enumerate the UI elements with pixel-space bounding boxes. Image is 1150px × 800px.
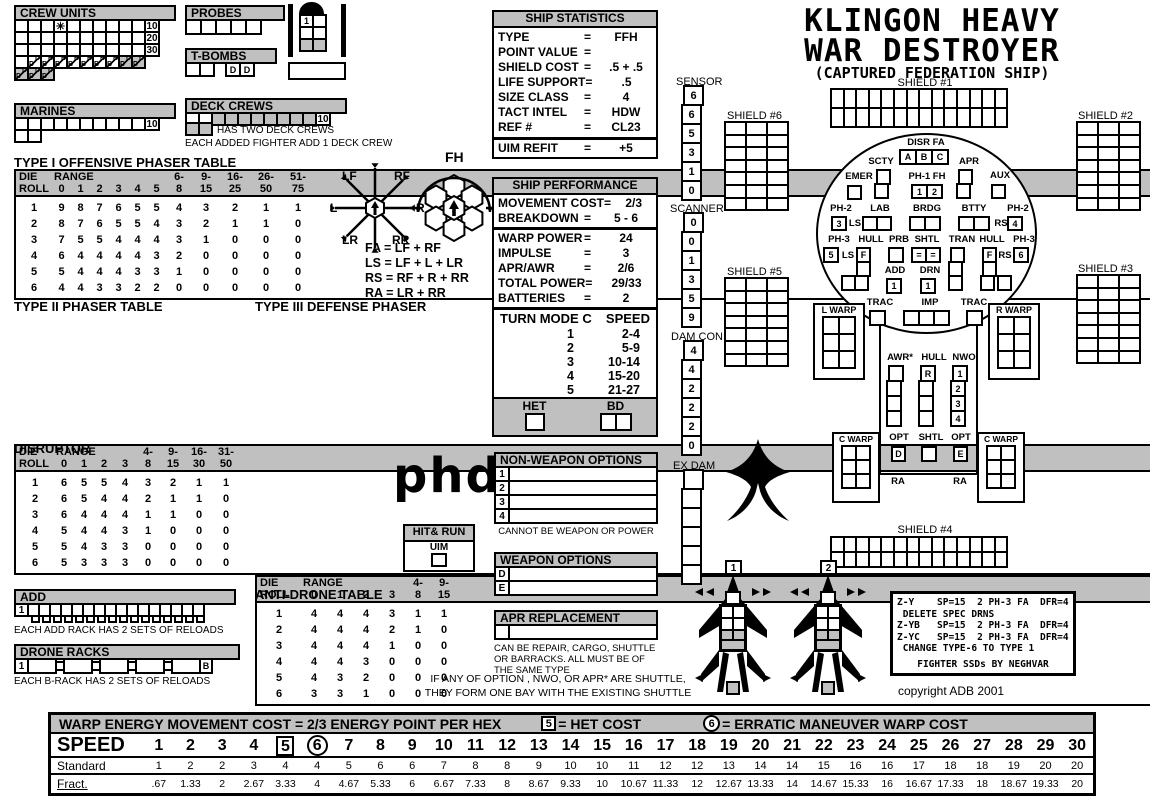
equals: = bbox=[584, 120, 600, 135]
value-cell: 4 bbox=[353, 606, 379, 622]
stat-row: SIZE CLASS=4 bbox=[494, 90, 656, 105]
stat-row: MOVEMENT COST=2/3 bbox=[494, 196, 656, 211]
value-cell: 6 bbox=[54, 507, 74, 523]
stat-label: TOTAL POWER bbox=[498, 276, 585, 291]
value-cell: 4 bbox=[90, 264, 109, 280]
turn-mode-speed: 15-20 bbox=[574, 369, 656, 383]
value-cell: 0 bbox=[160, 555, 186, 571]
value-cell: 3 bbox=[327, 686, 353, 702]
value-cell: 0 bbox=[405, 654, 431, 670]
hdr-text: 5 bbox=[153, 183, 159, 195]
speed-value: 10 bbox=[428, 737, 460, 755]
marines-row bbox=[14, 129, 176, 143]
turn-mode-number: 2 bbox=[494, 341, 574, 355]
drone-racks-panel: DRONE RACKS 1B EACH B-RACK HAS 2 SETS OF… bbox=[14, 644, 240, 687]
grid-row bbox=[1076, 350, 1141, 365]
stat-label: APR/AWR bbox=[498, 261, 584, 276]
fract-value: 6 bbox=[396, 778, 428, 790]
mark: B bbox=[94, 61, 99, 69]
fract-value: 13.33 bbox=[745, 778, 777, 790]
t-bombs-track: DD bbox=[185, 64, 285, 77]
value-cell: 4 bbox=[327, 606, 353, 622]
speed-value: 22 bbox=[808, 737, 840, 755]
value-cell: 7 bbox=[90, 200, 109, 216]
track-cell: 1 bbox=[681, 161, 702, 182]
mark: D bbox=[42, 73, 47, 81]
value-cell: 1 bbox=[160, 507, 186, 523]
speed-value: 17 bbox=[650, 737, 682, 755]
die-cell: 2 bbox=[16, 491, 54, 507]
value-cell: 0 bbox=[431, 654, 457, 670]
stat-value: 3 bbox=[600, 246, 652, 261]
erratic-circle: 6 bbox=[703, 715, 720, 732]
track-cell bbox=[681, 526, 702, 547]
standard-value: 16 bbox=[840, 760, 872, 772]
uim-box bbox=[431, 553, 447, 567]
value-cell: 4 bbox=[147, 216, 166, 232]
stat-label: LIFE SUPPORT bbox=[498, 75, 585, 90]
value-cell: 4 bbox=[114, 491, 136, 507]
range-col: 5 bbox=[147, 171, 166, 195]
fract-value: 6.67 bbox=[428, 778, 460, 790]
value-cell: 6 bbox=[109, 200, 128, 216]
die-cell: 2 bbox=[257, 622, 301, 638]
turn-mode-row: 521-27 bbox=[494, 383, 656, 397]
value-cell: 4 bbox=[353, 638, 379, 654]
stat-value: 29/33 bbox=[601, 276, 652, 291]
shuttle-cells: 1 bbox=[299, 14, 327, 52]
standard-value: 8 bbox=[491, 760, 523, 772]
r-warp-grid bbox=[997, 316, 1031, 369]
ship-statistics-rows: TYPE=FFHPOINT VALUE=SHIELD COST=.5 + .5L… bbox=[494, 28, 656, 137]
svg-text:2: 2 bbox=[826, 563, 832, 574]
range-col: 4-8 bbox=[136, 446, 160, 470]
fract-row: Fract..671.3322.673.3344.675.3366.677.33… bbox=[51, 775, 1093, 793]
shuttle-bay-icon: 1 bbox=[288, 2, 348, 82]
speed-value: 18 bbox=[681, 737, 713, 755]
hdr-text: 1 bbox=[81, 458, 87, 470]
ssd-sheet: CREW UNITS ✳102030DDBBBBBBBBBBBBDDDDDDDD… bbox=[0, 0, 1150, 800]
probes-track bbox=[185, 21, 285, 35]
hit-run-panel: HIT& RUN UIM bbox=[403, 524, 475, 572]
range-col: 2 bbox=[94, 446, 114, 470]
fighter-info-line: Z-YC SP=15 2 PH-3 FA DFR=4 bbox=[897, 632, 1069, 644]
erratic-label: = ERRATIC MANEUVER WARP COST bbox=[722, 716, 968, 732]
hdr-text: 50 bbox=[220, 458, 232, 470]
value-cell: 6 bbox=[90, 216, 109, 232]
value-cell: 0 bbox=[186, 555, 212, 571]
value-cell: 4 bbox=[74, 507, 94, 523]
speed-value: 7 bbox=[333, 737, 365, 755]
svg-text:LR: LR bbox=[342, 233, 358, 247]
value-cell: 5 bbox=[54, 539, 74, 555]
fract-value: 12.67 bbox=[713, 778, 745, 790]
het-speed-box: 5 bbox=[276, 736, 294, 756]
shuttle-note-line: THEY FORM ONE BAY WITH THE EXISTING SHUT… bbox=[408, 686, 708, 700]
die-cell: 3 bbox=[16, 232, 52, 248]
speed-value: 14 bbox=[555, 737, 587, 755]
standard-value: 14 bbox=[745, 760, 777, 772]
ship-title-line1: KLINGON HEAVY bbox=[762, 6, 1102, 36]
speed-label: SPEED bbox=[51, 734, 143, 757]
speed-value: 27 bbox=[966, 737, 998, 755]
value-cell: 4 bbox=[71, 280, 90, 296]
het-box bbox=[525, 413, 545, 431]
value-cell: 6 bbox=[54, 491, 74, 507]
grid-row bbox=[986, 473, 1016, 489]
standard-value: 1 bbox=[143, 760, 175, 772]
value-cell: 5 bbox=[147, 200, 166, 216]
value-cell: 4 bbox=[90, 248, 109, 264]
value-cell: 5 bbox=[128, 216, 147, 232]
standard-value: 13 bbox=[713, 760, 745, 772]
die-cell: 4 bbox=[16, 523, 54, 539]
hdr-text: 9- bbox=[168, 446, 178, 458]
speed-grid: SPEED12345678910111213141516171819202122… bbox=[51, 734, 1093, 793]
fighter-info-box: Z-Y SP=15 2 PH-3 FA DFR=4 DELETE SPEC DR… bbox=[890, 591, 1076, 676]
crew-count: 30 bbox=[144, 43, 160, 57]
hdr-text: 0 bbox=[61, 458, 67, 470]
turn-mode-title: TURN MODE C bbox=[500, 311, 592, 326]
track-cell: 0 bbox=[681, 231, 702, 252]
standard-row: Standard12234456678891010111212131414151… bbox=[51, 758, 1093, 775]
stat-value: 5 - 6 bbox=[600, 211, 652, 226]
fract-value: 18.67 bbox=[998, 778, 1030, 790]
grid-row bbox=[822, 350, 856, 369]
value-cell: 5 bbox=[90, 232, 109, 248]
value-cell: 7 bbox=[52, 232, 71, 248]
track-cell: 5 bbox=[681, 288, 702, 309]
speed-value: 3 bbox=[206, 737, 238, 755]
die-cell: 4 bbox=[16, 248, 52, 264]
value-cell: 3 bbox=[114, 555, 136, 571]
standard-value: 3 bbox=[238, 760, 270, 772]
equals: = bbox=[584, 90, 600, 105]
hdr-text: 4- bbox=[143, 446, 153, 458]
range-col: 16-25 bbox=[220, 171, 250, 195]
shield-cell bbox=[1118, 350, 1141, 365]
stat-label: WARP POWER bbox=[498, 231, 584, 246]
hdr-text: 3 bbox=[115, 183, 121, 195]
turn-mode-number: 1 bbox=[494, 327, 574, 341]
stat-value: 2/3 bbox=[615, 196, 652, 211]
het-label: HET bbox=[494, 399, 575, 413]
anti-drone-title: ANTI-DRONE TABLE bbox=[255, 587, 383, 602]
stat-label: SHIELD COST bbox=[498, 60, 584, 75]
stat-row: BREAKDOWN=5 - 6 bbox=[494, 211, 656, 226]
non-weapon-options-rows: 1234 bbox=[494, 466, 658, 524]
track-cell: 0 bbox=[681, 180, 702, 201]
fract-value: 4.67 bbox=[333, 778, 365, 790]
shield-cell bbox=[1118, 197, 1141, 212]
shield-cell bbox=[1097, 350, 1120, 365]
hdr-text: 8 bbox=[415, 589, 421, 601]
svg-text:RF: RF bbox=[394, 169, 410, 183]
stat-value: HDW bbox=[600, 105, 652, 120]
deck-crews-note2: EACH ADDED FIGHTER ADD 1 DECK CREW bbox=[185, 138, 347, 149]
range-col: 16-30 bbox=[186, 446, 212, 470]
equals: = bbox=[584, 105, 600, 120]
value-cell: 1 bbox=[192, 232, 220, 248]
speed-value: 13 bbox=[523, 737, 555, 755]
value-cell: 0 bbox=[192, 248, 220, 264]
value-cell: 3 bbox=[166, 232, 192, 248]
fract-value: 14.67 bbox=[808, 778, 840, 790]
standard-value: 9 bbox=[523, 760, 555, 772]
hdr-text: 30 bbox=[193, 458, 205, 470]
track-cell bbox=[681, 488, 702, 509]
value-cell: 4 bbox=[74, 539, 94, 555]
ship-performance-panel: SHIP PERFORMANCE MOVEMENT COST=2/3BREAKD… bbox=[492, 177, 658, 437]
hdr-text: 31- bbox=[218, 446, 234, 458]
stat-label: REF # bbox=[498, 120, 584, 135]
c-warp-right-box: C WARP bbox=[977, 432, 1025, 503]
value-cell: 0 bbox=[166, 280, 192, 296]
grid-row bbox=[1076, 197, 1141, 212]
stat-row: POINT VALUE= bbox=[494, 45, 656, 60]
value-cell: 2 bbox=[379, 622, 405, 638]
value-cell: 6 bbox=[52, 248, 71, 264]
standard-value: 11 bbox=[618, 760, 650, 772]
marines-grid: 10 bbox=[14, 117, 176, 143]
range-col: 9-15 bbox=[160, 446, 186, 470]
value-cell: 2 bbox=[220, 200, 250, 216]
hdr-text: 26- bbox=[258, 171, 274, 183]
stat-row: WARP POWER=24 bbox=[494, 231, 656, 246]
range-col: 9-15 bbox=[192, 171, 220, 195]
value-cell: 1 bbox=[136, 507, 160, 523]
value-cell: 0 bbox=[220, 232, 250, 248]
range-col: 31-50 bbox=[212, 446, 240, 470]
value-cell: 3 bbox=[147, 248, 166, 264]
speed-value: 16 bbox=[618, 737, 650, 755]
drone-rack-b: B bbox=[199, 658, 213, 674]
r-warp-box: R WARP bbox=[988, 303, 1040, 380]
value-cell: 5 bbox=[54, 555, 74, 571]
grid-row bbox=[997, 350, 1031, 369]
value-cell: 1 bbox=[379, 638, 405, 654]
die-cell: 1 bbox=[16, 475, 54, 491]
mark: D bbox=[16, 73, 21, 81]
value-cell: 0 bbox=[282, 232, 314, 248]
speed-value: 30 bbox=[1061, 737, 1093, 755]
die-cell: 4 bbox=[257, 654, 301, 670]
value-cell: 1 bbox=[186, 491, 212, 507]
value-cell: 2 bbox=[128, 280, 147, 296]
weapon-options-panel: WEAPON OPTIONS DE bbox=[494, 552, 658, 596]
shield-cell bbox=[855, 473, 871, 489]
speed-value: 9 bbox=[396, 737, 428, 755]
option-slot bbox=[508, 508, 658, 524]
deck-crews-panel: DECK CREWS 10 HAS TWO DECK CREWS EACH AD… bbox=[185, 98, 347, 149]
fract-value: 20 bbox=[1061, 778, 1093, 790]
equals: = bbox=[585, 276, 601, 291]
crew-cell: DD bbox=[131, 55, 146, 69]
value-cell: 3 bbox=[166, 216, 192, 232]
shield5-grid bbox=[724, 277, 789, 367]
svg-text:LF: LF bbox=[342, 169, 357, 183]
value-cell: 4 bbox=[114, 475, 136, 491]
turn-mode-speed-label: SPEED bbox=[606, 311, 650, 326]
copyright: copyright ADB 2001 bbox=[898, 684, 1004, 698]
fract-value: 8 bbox=[491, 778, 523, 790]
stat-row: REF #=CL23 bbox=[494, 120, 656, 135]
c-warp-label: C WARP bbox=[834, 434, 878, 444]
turn-mode-speed: 10-14 bbox=[574, 355, 656, 369]
range-col: 51-75 bbox=[282, 171, 314, 195]
value-cell: 0 bbox=[379, 654, 405, 670]
speed-value: 4 bbox=[238, 737, 270, 755]
bd-label: BD bbox=[575, 399, 656, 413]
phaser2-title: TYPE II PHASER TABLE bbox=[14, 299, 163, 314]
track-cell: 4 bbox=[681, 359, 702, 380]
hdr-text: 15 bbox=[167, 458, 179, 470]
value-cell: 0 bbox=[220, 264, 250, 280]
standard-value: 8 bbox=[460, 760, 492, 772]
arc-formula-line: RS = RF + R + RR bbox=[365, 271, 469, 286]
hdr-text: 51- bbox=[290, 171, 306, 183]
stat-label: TYPE bbox=[498, 30, 584, 45]
die-cell: 6 bbox=[16, 280, 52, 296]
equals: = bbox=[604, 196, 615, 211]
stat-value: +5 bbox=[600, 140, 652, 157]
het-cost-label: = HET COST bbox=[558, 716, 641, 732]
track-cell: 2 bbox=[681, 416, 702, 437]
value-cell: 5 bbox=[74, 475, 94, 491]
standard-value: 15 bbox=[808, 760, 840, 772]
ship-statistics-panel: SHIP STATISTICS TYPE=FFHPOINT VALUE=SHIE… bbox=[492, 10, 658, 159]
hdr-text: 2 bbox=[101, 458, 107, 470]
fract-value: 5.33 bbox=[365, 778, 397, 790]
ship-title: KLINGON HEAVY WAR DESTROYER (CAPTURED FE… bbox=[762, 6, 1102, 81]
value-cell: 0 bbox=[282, 264, 314, 280]
t-bomb-d-cell: D bbox=[239, 62, 255, 77]
value-cell: 4 bbox=[52, 280, 71, 296]
stat-row: TOTAL POWER=29/33 bbox=[494, 276, 656, 291]
hdr-text: 15 bbox=[438, 589, 450, 601]
drone-racks-note: EACH B-RACK HAS 2 SETS OF RELOADS bbox=[14, 676, 240, 687]
hdr-text: 25 bbox=[229, 183, 241, 195]
value-cell: 3 bbox=[147, 264, 166, 280]
performance-group1: MOVEMENT COST=2/3BREAKDOWN=5 - 6 bbox=[494, 195, 656, 227]
speed-value: 21 bbox=[776, 737, 808, 755]
c-warp-left-box: C WARP bbox=[832, 432, 880, 503]
shield1-grid bbox=[830, 88, 1008, 128]
stat-label: TACT INTEL bbox=[498, 105, 584, 120]
fract-value: 19.33 bbox=[1030, 778, 1062, 790]
fract-value: 3.33 bbox=[270, 778, 302, 790]
value-cell: 3 bbox=[114, 539, 136, 555]
standard-value: 16 bbox=[871, 760, 903, 772]
fighter-info-line: DELETE SPEC DRNS bbox=[897, 609, 1069, 621]
range-col: 3 bbox=[109, 171, 128, 195]
die-cell: 1 bbox=[16, 200, 52, 216]
speed-value: 19 bbox=[713, 737, 745, 755]
stat-row: BATTERIES=2 bbox=[494, 291, 656, 306]
value-cell: 8 bbox=[52, 216, 71, 232]
standard-value: 4 bbox=[270, 760, 302, 772]
shield-cell bbox=[724, 353, 747, 368]
mark: D bbox=[48, 67, 53, 75]
track-cell: 6 bbox=[681, 104, 702, 125]
shield-cell bbox=[994, 107, 1009, 128]
shuttle-note-line: IF ANY OF OPTION , NWO, OR APR* ARE SHUT… bbox=[408, 672, 708, 686]
turn-mode-row: 25-9 bbox=[494, 341, 656, 355]
equals: = bbox=[584, 140, 600, 157]
drone-rack-cell bbox=[171, 658, 201, 674]
value-cell: 0 bbox=[379, 686, 405, 702]
die-cell: 2 bbox=[16, 216, 52, 232]
standard-value: 2 bbox=[175, 760, 207, 772]
value-cell: 0 bbox=[136, 539, 160, 555]
speed-value: 11 bbox=[460, 737, 492, 755]
t-bombs-panel: T-BOMBS DD bbox=[185, 48, 285, 77]
value-cell: 1 bbox=[160, 491, 186, 507]
dam-con-track: 442220 bbox=[683, 342, 704, 456]
marines-panel: MARINES 10 bbox=[14, 103, 176, 143]
stat-value: 2 bbox=[600, 291, 652, 306]
speed-value: 6 bbox=[301, 735, 333, 756]
mark: D bbox=[29, 73, 34, 81]
value-cell: 1 bbox=[186, 475, 212, 491]
standard-value: 20 bbox=[1030, 760, 1062, 772]
fighter-1: 1 bbox=[693, 560, 773, 708]
add-rack-track: 1 bbox=[14, 605, 236, 617]
value-cell: 5 bbox=[52, 264, 71, 280]
speed-value: 24 bbox=[871, 737, 903, 755]
value-cell: 4 bbox=[94, 507, 114, 523]
value-cell: 0 bbox=[192, 264, 220, 280]
speed-value: 26 bbox=[935, 737, 967, 755]
crew-units-grid: ✳102030DDBBBBBBBBBBBBDDDDDDDDDD bbox=[14, 19, 176, 81]
shuttle-note: IF ANY OF OPTION , NWO, OR APR* ARE SHUT… bbox=[408, 672, 708, 700]
speed-value: 20 bbox=[745, 737, 777, 755]
track-cell: 5 bbox=[681, 123, 702, 144]
value-cell: 8 bbox=[71, 200, 90, 216]
value-cell: 4 bbox=[353, 622, 379, 638]
hdr-text: 15 bbox=[200, 183, 212, 195]
hdr-text: ROLL bbox=[19, 458, 54, 470]
value-cell: 3 bbox=[114, 523, 136, 539]
stat-label: BATTERIES bbox=[498, 291, 584, 306]
grid-row bbox=[830, 107, 1008, 128]
shield-cell bbox=[745, 197, 768, 212]
marines-count: 10 bbox=[144, 117, 160, 131]
speed-value: 5 bbox=[270, 736, 302, 756]
value-cell: 4 bbox=[109, 232, 128, 248]
value-cell: 3 bbox=[109, 280, 128, 296]
shield-cell bbox=[1097, 197, 1120, 212]
value-cell: 1 bbox=[250, 200, 282, 216]
value-cell: 4 bbox=[128, 248, 147, 264]
value-cell: 0 bbox=[250, 232, 282, 248]
ship-title-line2: WAR DESTROYER bbox=[762, 36, 1102, 66]
track-cell: 0 bbox=[681, 435, 702, 456]
value-cell: 4 bbox=[94, 491, 114, 507]
value-cell: 0 bbox=[160, 523, 186, 539]
hull-outline bbox=[879, 322, 978, 475]
marine-cell bbox=[27, 129, 42, 143]
turn-mode-number: 3 bbox=[494, 355, 574, 369]
range-col: 26-50 bbox=[250, 171, 282, 195]
grid-row bbox=[724, 197, 789, 212]
c-warp-right-grid bbox=[986, 445, 1016, 489]
crew-cell: DD bbox=[40, 67, 55, 81]
erratic-speed-circle: 6 bbox=[307, 735, 328, 756]
mark: B bbox=[81, 61, 86, 69]
shield3-grid bbox=[1076, 274, 1141, 364]
hdr-text: 16- bbox=[191, 446, 207, 458]
